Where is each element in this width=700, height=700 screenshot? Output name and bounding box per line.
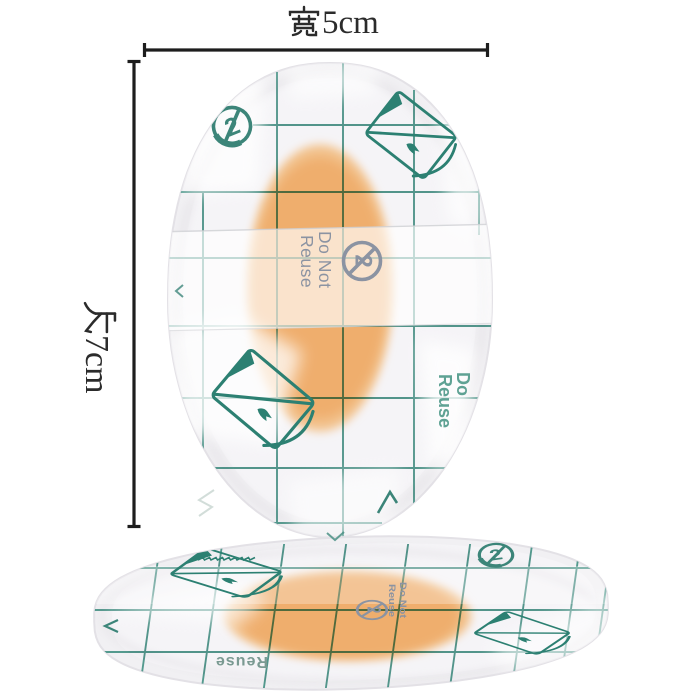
svg-text:Do Not: Do Not	[397, 582, 407, 619]
svg-text:Do Not: Do Not	[315, 231, 335, 288]
svg-text:5cm: 5cm	[322, 5, 379, 41]
svg-text:Reuse: Reuse	[297, 235, 317, 288]
svg-text:Reuse: Reuse	[386, 584, 396, 618]
svg-text:Do: Do	[453, 372, 473, 396]
svg-text:Reuse: Reuse	[215, 653, 268, 670]
svg-text:Reuse: Reuse	[435, 374, 455, 428]
svg-text:7cm: 7cm	[78, 335, 115, 394]
